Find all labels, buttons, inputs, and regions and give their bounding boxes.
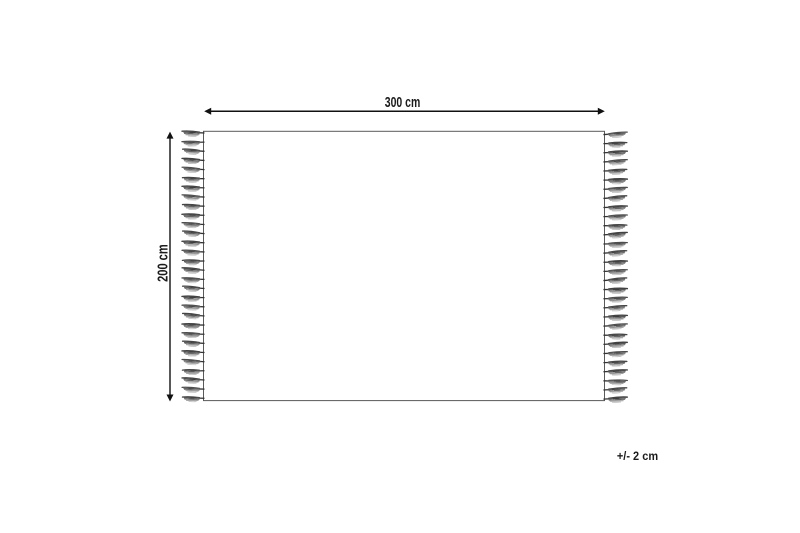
svg-text:200 cm: 200 cm <box>155 244 171 282</box>
svg-text:300 cm: 300 cm <box>385 94 421 111</box>
svg-text:+/- 2 cm: +/- 2 cm <box>617 449 658 463</box>
